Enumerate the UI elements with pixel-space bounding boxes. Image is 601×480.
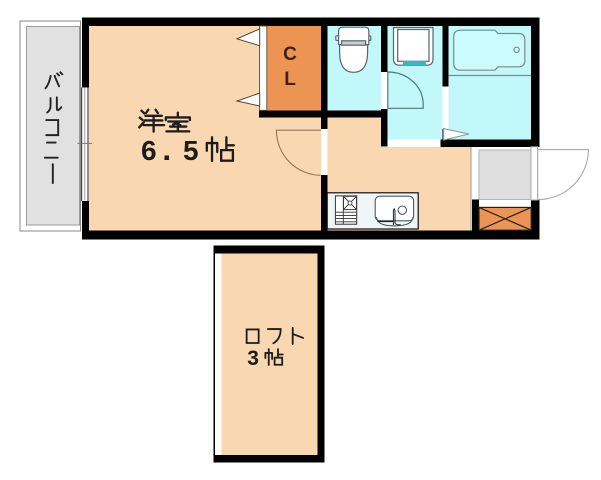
svg-text:5: 5 [183,135,199,166]
svg-text:3: 3 [247,347,259,370]
svg-text:L: L [284,69,296,90]
svg-text:6: 6 [141,135,157,166]
svg-text:C: C [283,44,297,65]
